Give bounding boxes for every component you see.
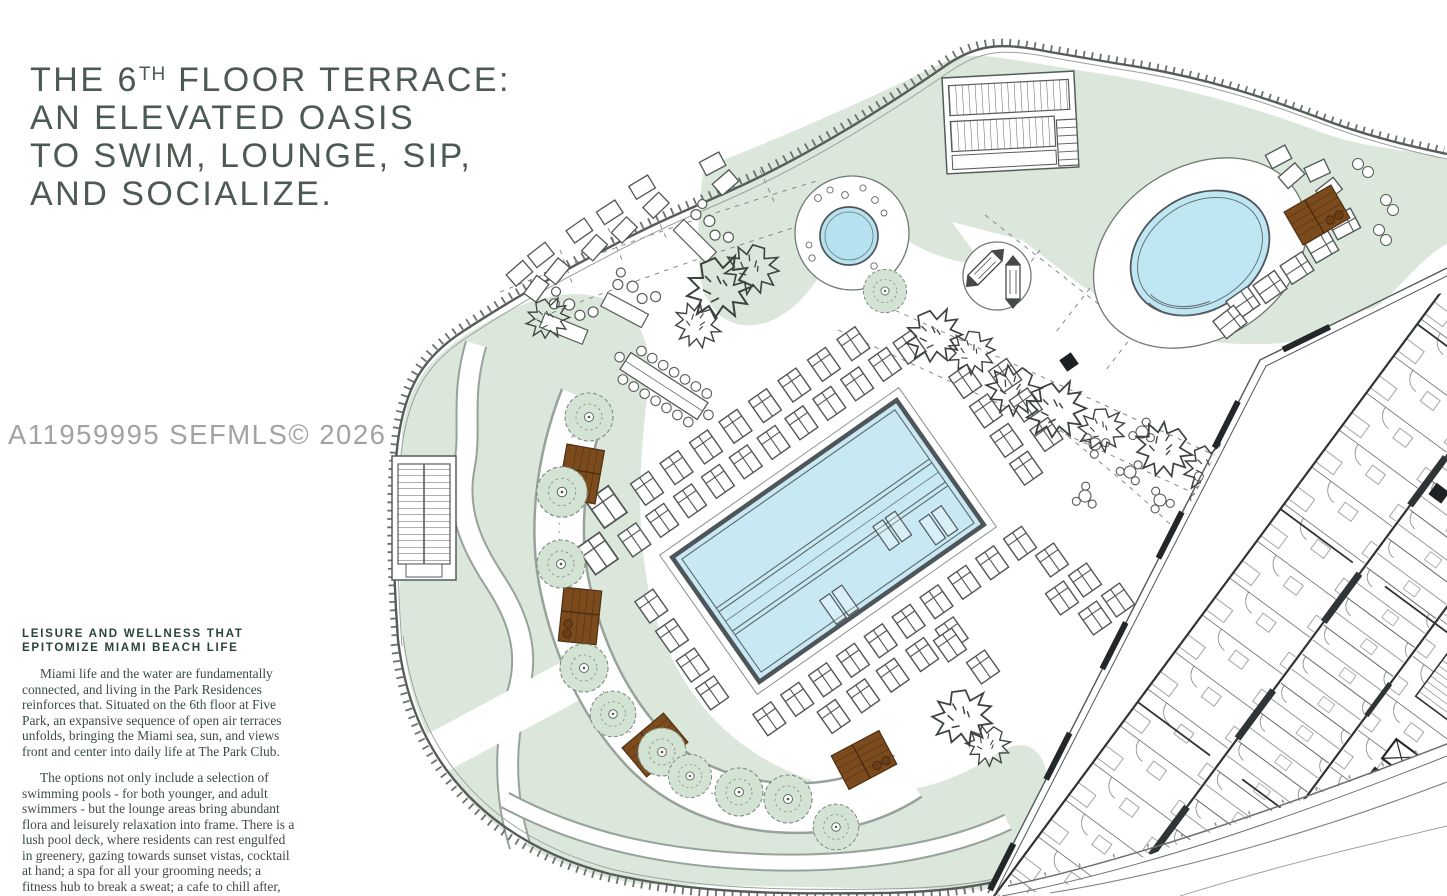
west-grand-stair <box>392 456 456 580</box>
section-heading: LEISURE AND WELLNESS THAT EPITOMIZE MIAM… <box>22 627 298 655</box>
body-paragraph-2: The options not only include a selection… <box>22 770 298 896</box>
brochure-page: THE 6TH FLOOR TERRACE: AN ELEVATED OASIS… <box>0 0 1447 896</box>
headline-line-2: AN ELEVATED OASIS <box>30 99 511 137</box>
mls-watermark: A11959995 SEFMLS© 2026 <box>8 419 386 451</box>
headline-line-3: TO SWIM, LOUNGE, SIP, <box>30 137 511 175</box>
body-paragraph-1: Miami life and the water are fundamental… <box>22 666 298 759</box>
north-grand-stair <box>942 71 1079 174</box>
headline-line-1: THE 6TH FLOOR TERRACE: <box>30 56 511 99</box>
body-copy: LEISURE AND WELLNESS THAT EPITOMIZE MIAM… <box>22 627 298 896</box>
ordinal-superscript: TH <box>139 64 166 85</box>
headline-line-4: AND SOCIALIZE. <box>30 175 511 213</box>
page-title: THE 6TH FLOOR TERRACE: AN ELEVATED OASIS… <box>30 56 511 213</box>
